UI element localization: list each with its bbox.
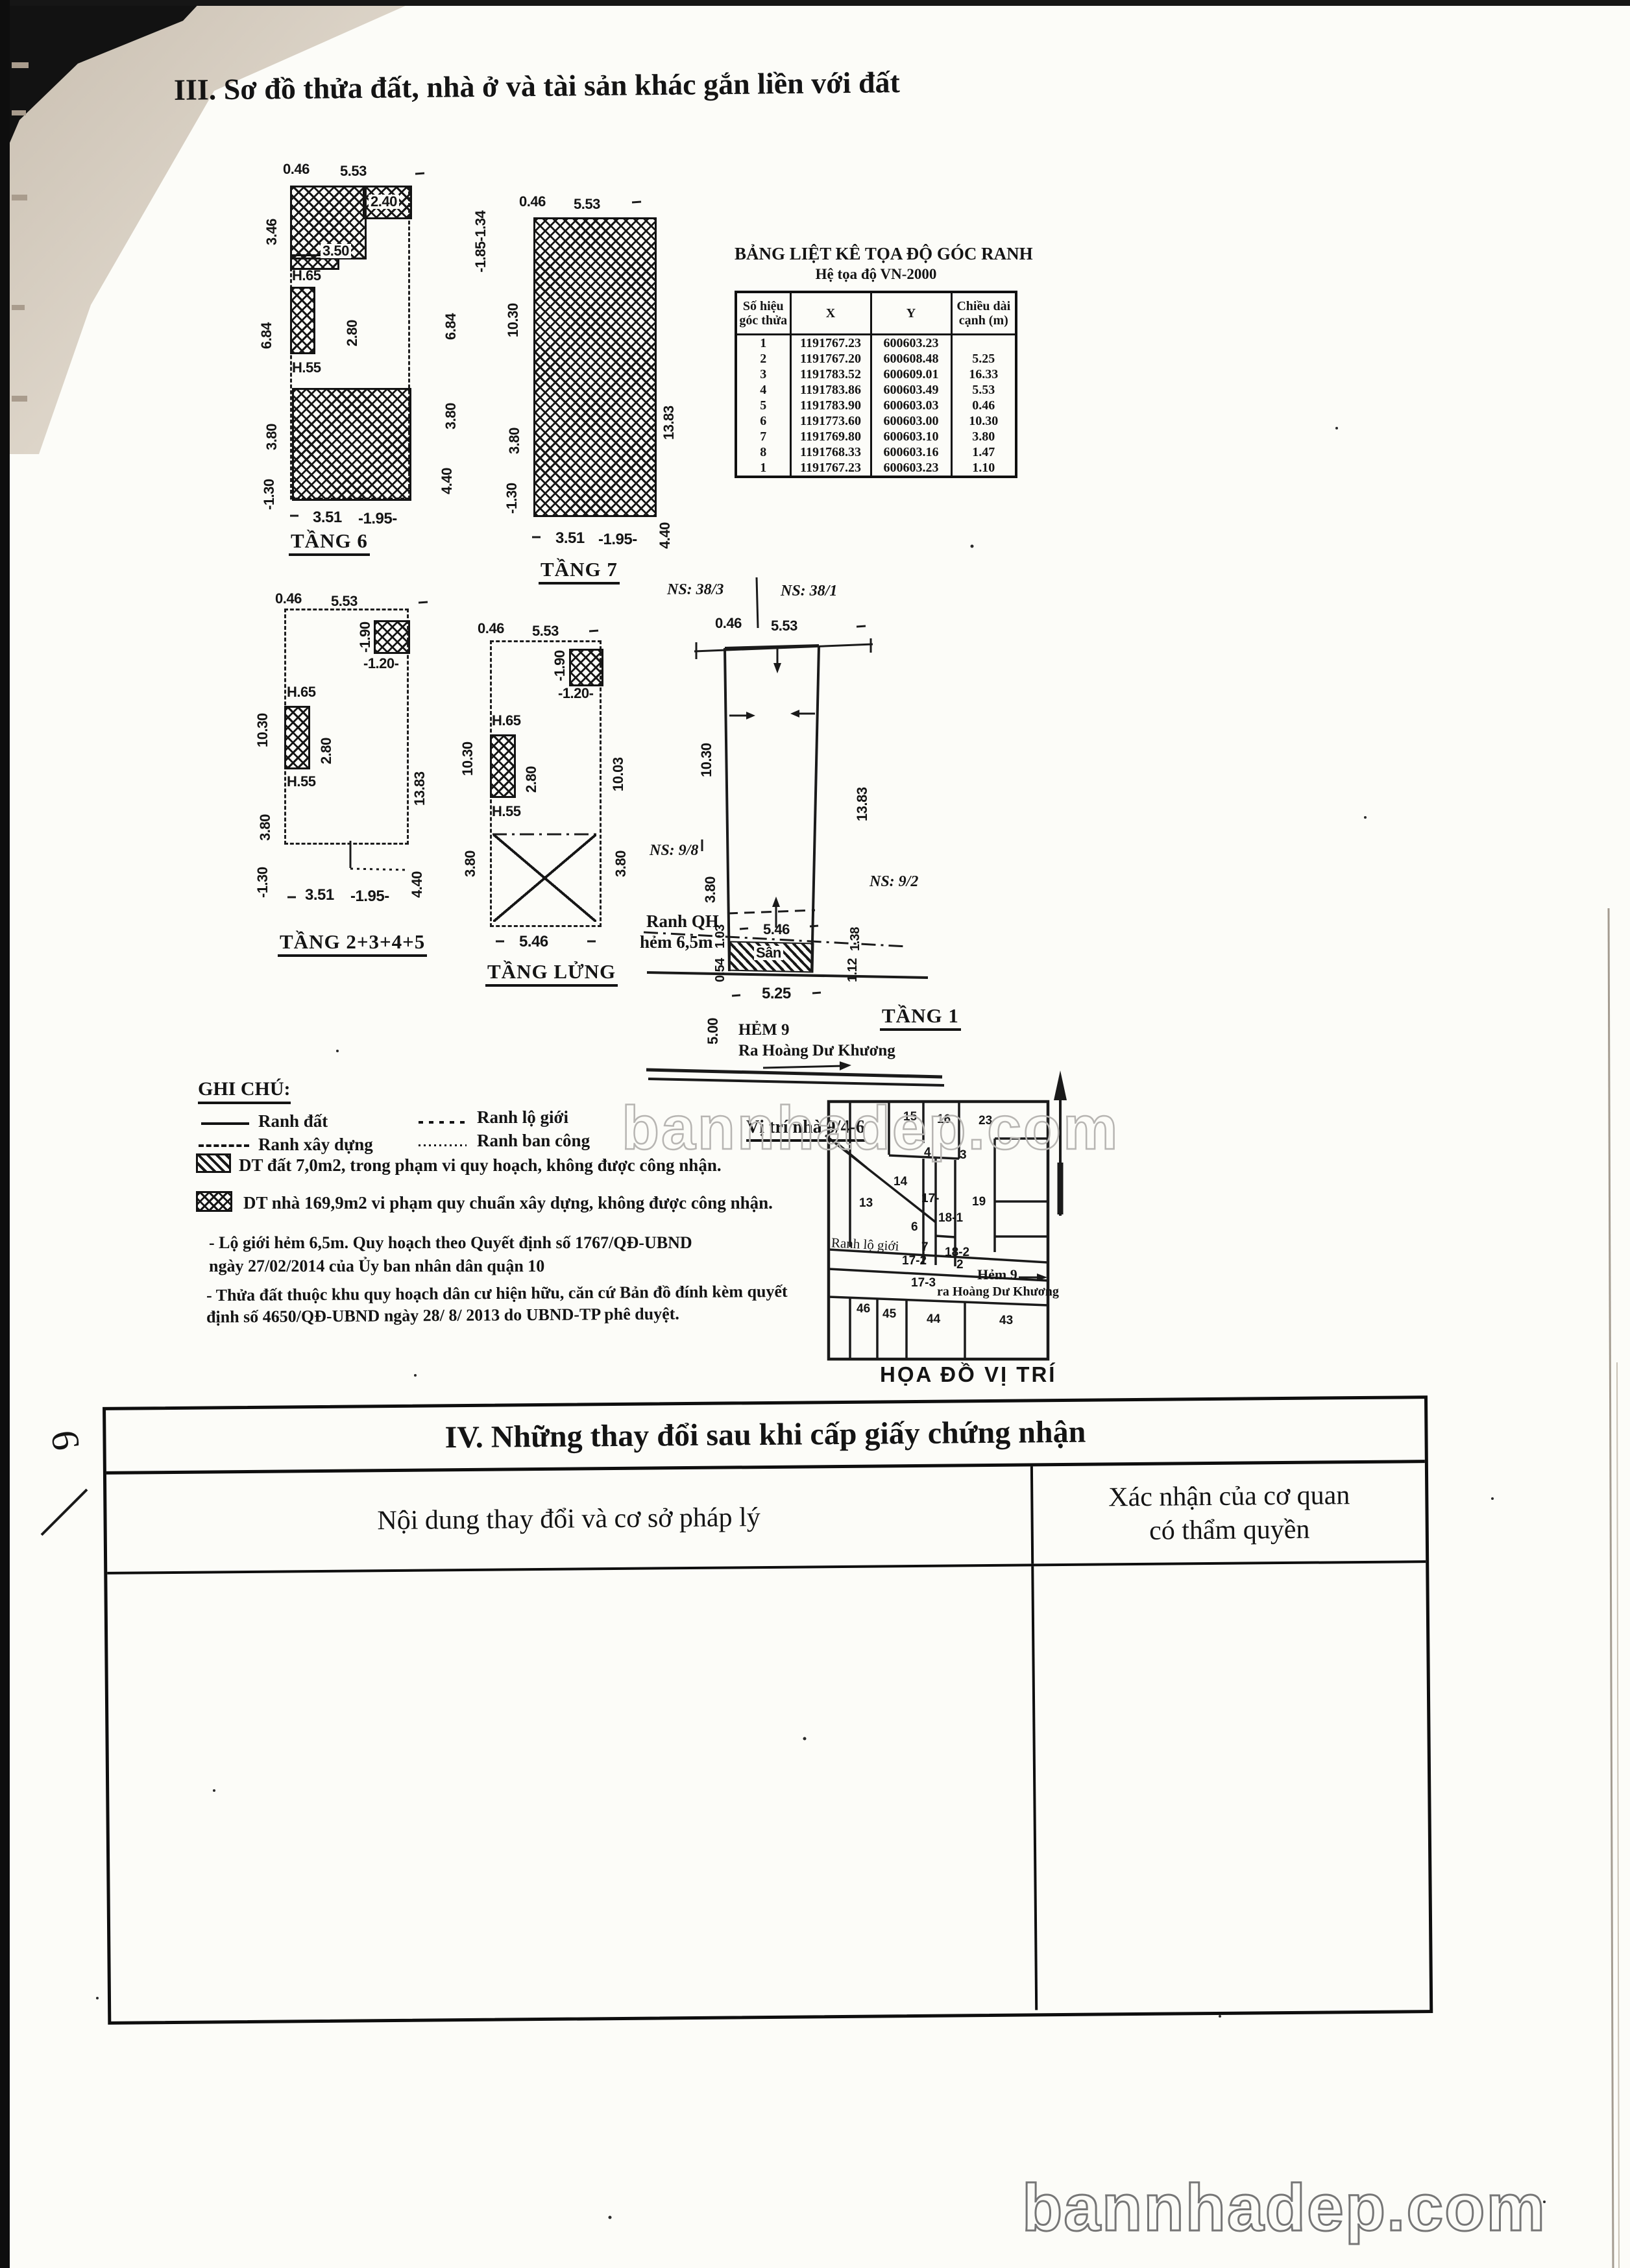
tanglung-dim: H.55 (492, 804, 520, 819)
tang2345-dim: H.65 (287, 685, 315, 699)
legend-swatch-diagonal (196, 1153, 231, 1173)
map-parcel: 4 (924, 1146, 931, 1159)
coord-cell: 16.33 (951, 367, 1016, 382)
map-parcel: 2 (956, 1259, 964, 1271)
coord-header-y: Y (871, 292, 951, 335)
tang6-dim: 6.84 (444, 313, 458, 340)
map-parcel: 15 (903, 1111, 917, 1123)
tang6-dim: 3.80 (265, 424, 279, 450)
map-title: HỌA ĐỒ VỊ TRÍ (880, 1364, 1056, 1385)
tang6-dim: H.65 (292, 269, 321, 283)
map-parcel: 13 (859, 1197, 873, 1209)
tang2345-dim: 3.51 (305, 887, 334, 903)
map-ra-hoang-label: ra Hoàng Dư Khương (937, 1285, 1059, 1299)
coord-cell: 1 (736, 460, 790, 477)
coord-table-row: 11191767.23600603.231.10 (736, 460, 1016, 477)
tang7-dim: 0.46 (519, 195, 546, 209)
tanglung-dim: 10.03 (611, 757, 626, 791)
watermark-middle: bannhadep.com (622, 1098, 1119, 1159)
coord-cell: 7 (736, 429, 790, 444)
tang6-dim: 3.50 (321, 244, 351, 258)
tang2345-dim: 13.83 (413, 771, 427, 806)
coord-table-row: 11191767.23600603.23 (736, 335, 1016, 352)
coord-cell: 600603.23 (871, 460, 951, 477)
tanglung-dim: 3.80 (463, 850, 478, 877)
coord-table-title: BẢNG LIỆT KÊ TỌA ĐỘ GÓC RANH (735, 244, 1017, 264)
tang6-dim: 4.40 (440, 468, 454, 494)
coord-cell: 10.30 (951, 413, 1016, 429)
tang7-dim: 4.40 (658, 522, 672, 549)
map-parcel: 7 (921, 1241, 929, 1253)
tang1-ns: NS: 38/3 (667, 581, 724, 599)
coord-table-body: 11191767.23600603.2321191767.20600608.48… (736, 335, 1016, 477)
tang6-dim: -1.30 (262, 479, 276, 510)
coord-cell: 5.53 (951, 382, 1016, 398)
coord-cell: 600603.16 (871, 444, 951, 460)
coord-header-corner: Số hiệugóc thửa (736, 292, 790, 335)
tang7-label: TẦNG 7 (539, 559, 620, 585)
coord-cell: 600609.01 (871, 367, 951, 382)
coord-cell: 1191773.60 (790, 413, 871, 429)
coord-cell: 0.46 (951, 398, 1016, 413)
tanglung-dim: 5.46 (519, 934, 548, 950)
tang2345-dim: 5.53 (331, 594, 358, 609)
coord-cell: 5.25 (951, 351, 1016, 367)
map-parcel: 16 (937, 1113, 951, 1126)
tang6-hatch-mid (290, 287, 315, 354)
tang2345-hatch-topright (374, 620, 410, 654)
coord-cell: 5 (736, 398, 790, 413)
tang1-dim: 13.83 (855, 787, 870, 821)
legend-note: - Lộ giới hẻm 6,5m. Quy hoạch theo Quyết… (209, 1233, 692, 1253)
map-parcel: 19 (972, 1196, 986, 1208)
scanned-certificate-page: III. Sơ đồ thửa đất, nhà ở và tài sản kh… (0, 0, 1630, 2268)
map-parcel: 17-2 (902, 1255, 927, 1267)
tang6-dim: 6.84 (260, 322, 274, 349)
handwritten-page-mark: 6 (45, 1428, 86, 1453)
tang1-dim: 1.12 (846, 958, 859, 982)
coord-table-row: 21191767.20600608.485.25 (736, 351, 1016, 367)
legend-heading: GHI CHÚ: (198, 1078, 291, 1104)
coord-table-row: 31191783.52600609.0116.33 (736, 367, 1016, 382)
legend-line-fine (419, 1144, 467, 1146)
coord-cell: 600603.49 (871, 382, 951, 398)
coord-cell: 1191768.33 (790, 444, 871, 460)
tang2345-dim: 3.80 (258, 814, 273, 841)
map-parcel: 43 (999, 1314, 1013, 1327)
legend-area2: DT nhà 169,9m2 vi phạm quy chuẩn xây dựn… (243, 1192, 773, 1213)
coord-table-subtitle: Hệ tọa độ VN-2000 (735, 266, 1017, 283)
tang2345-dim: -1.95- (350, 889, 389, 904)
tang1-dim: 5.46 (763, 923, 790, 937)
coord-cell: 4 (736, 382, 790, 398)
tang7-dim: -1.95- (598, 532, 637, 548)
tang6-label: TẦNG 6 (289, 531, 370, 556)
tang1-dim: 10.30 (699, 743, 714, 777)
tang1-dim: 0.46 (715, 616, 742, 631)
tang2345-dim: 4.40 (410, 871, 424, 898)
tanglung-dim: -1.20- (558, 686, 593, 701)
tang2345-dim: -1.90 (358, 621, 372, 653)
tang6-dim: -1.95- (358, 511, 397, 527)
tang1-dim: 0.54 (714, 958, 727, 982)
tang7-dim: -1.30 (505, 483, 519, 514)
legend-label: Ranh xây dựng (258, 1134, 373, 1155)
tanglung-dim: -1.90 (553, 650, 567, 681)
tanglung-hatch-topright (569, 649, 603, 686)
tang6-dim: 0.46 (283, 162, 310, 176)
legend-label: Ranh ban công (477, 1130, 590, 1151)
coord-cell: 1.10 (951, 460, 1016, 477)
map-parcel: 3 (960, 1149, 967, 1161)
tang6-dim: 2.80 (345, 320, 359, 346)
tang1-hem9: HẺM 9 (738, 1021, 789, 1039)
tang1-ns: NS: 9/8 (650, 842, 698, 860)
tang6-dim: 5.53 (340, 164, 367, 178)
tang7-dim: 3.80 (507, 428, 522, 454)
map-parcel: 6 (911, 1221, 918, 1233)
legend-note: định số 4650/QĐ-UBND ngày 28/ 8/ 2013 do… (206, 1303, 679, 1327)
map-parcel: 46 (857, 1303, 870, 1315)
legend-swatch-cross (196, 1191, 232, 1212)
tang7-hatch (533, 217, 657, 517)
section3-title: III. Sơ đồ thửa đất, nhà ở và tài sản kh… (174, 66, 900, 106)
tang1-dim: 5.00 (706, 1018, 720, 1044)
coord-header-x: X (790, 292, 871, 335)
section4-col2-cell (1034, 1563, 1429, 2010)
map-ranh-lo-gioi-label: Ranh lộ giới (831, 1235, 899, 1254)
section4-col1-header: Nội dung thay đổi và cơ sở pháp lý (106, 1466, 1034, 1571)
coord-cell: 3.80 (951, 429, 1016, 444)
tang7-dim: 5.53 (574, 197, 600, 211)
map-parcel: 17-3 (911, 1277, 936, 1289)
legend-area1: DT đất 7,0m2, trong phạm vi quy hoạch, k… (239, 1155, 722, 1176)
tang1-ranh-qh: Ranh QH (646, 911, 719, 932)
tang2345-dim: H.55 (287, 775, 315, 789)
tanglung-void-cross (493, 834, 596, 922)
coord-table-row: 81191768.33600603.161.47 (736, 444, 1016, 460)
tang1-ranh-qh: hẻm 6,5m (640, 932, 712, 952)
coord-table-row: 61191773.60600603.0010.30 (736, 413, 1016, 429)
coord-cell: 1191783.52 (790, 367, 871, 382)
tang6-dim: -1.85-1.34 (474, 211, 488, 272)
tang1-label: TẦNG 1 (880, 1006, 961, 1031)
coord-cell: 600603.03 (871, 398, 951, 413)
tanglung-label: TẦNG LỬNG (485, 961, 618, 987)
tang6-dim: 3.80 (444, 403, 458, 429)
tanglung-dim: 2.80 (524, 766, 539, 793)
tang6-dim: 3.51 (313, 510, 342, 525)
tanglung-hatch-left (490, 734, 516, 798)
coord-cell: 1191767.23 (790, 460, 871, 477)
section4-col1-cell (107, 1566, 1038, 2018)
tang1-ns: NS: 38/1 (781, 583, 837, 600)
legend-label: Ranh lộ giới (477, 1107, 568, 1128)
tang1-dim: 1.38 (849, 927, 862, 951)
coord-table-row: 41191783.86600603.495.53 (736, 382, 1016, 398)
coord-cell: 1 (736, 335, 790, 352)
map-parcel: 17- (921, 1192, 939, 1205)
tang6-dim: H.55 (292, 361, 321, 375)
tang2345-hatch-left (284, 706, 310, 769)
map-vi-tri-label: Vị trí nhà 9/4-6 (746, 1117, 865, 1142)
coord-cell: 600603.00 (871, 413, 951, 429)
tanglung-dim: 3.80 (614, 850, 628, 877)
coord-cell: 600603.10 (871, 429, 951, 444)
watermark-bottom: bannhadep.com (1022, 2175, 1546, 2241)
tanglung-dim: 10.30 (461, 742, 475, 776)
tang6-dim: 2.40 (369, 195, 399, 209)
tang1-dim: 1.03 (714, 924, 727, 948)
coord-header-row: Số hiệugóc thửa X Y Chiều dàicạnh (m) (736, 292, 1016, 335)
tanglung-dim: 5.53 (532, 624, 559, 638)
legend-label: Ranh đất (258, 1111, 328, 1131)
tang2345-dim: -1.30 (256, 867, 270, 898)
coord-table-row: 51191783.90600603.030.46 (736, 398, 1016, 413)
coord-cell: 1191767.23 (790, 335, 871, 352)
tang7-dim: 3.51 (555, 531, 585, 546)
tang2345-dim: 2.80 (319, 738, 334, 764)
coord-table-row: 71191769.80600603.103.80 (736, 429, 1016, 444)
coord-cell: 2 (736, 351, 790, 367)
tang1-dim: 5.25 (762, 986, 791, 1002)
tanglung-dim: H.65 (492, 714, 520, 728)
section4-title: IV. Những thay đổi sau khi cấp giấy chứn… (106, 1399, 1425, 1475)
coord-cell: 1.47 (951, 444, 1016, 460)
legend-line-solid (201, 1122, 249, 1125)
section4-header-row: Nội dung thay đổi và cơ sở pháp lý Xác n… (106, 1463, 1426, 1574)
coord-cell: 1191783.86 (790, 382, 871, 398)
tang1-ns: NS: 9/2 (870, 873, 918, 891)
tang6-hatch-bottom (292, 388, 411, 501)
coord-cell: 600608.48 (871, 351, 951, 367)
map-parcel: 44 (927, 1313, 940, 1325)
coord-cell: 600603.23 (871, 335, 951, 352)
map-parcel: 18-2 (945, 1246, 969, 1259)
coord-cell: 1191767.20 (790, 351, 871, 367)
coord-cell: 6 (736, 413, 790, 429)
map-parcel: 45 (882, 1308, 896, 1320)
tang1-san-label: Sân (754, 946, 783, 960)
coord-cell (951, 335, 1016, 352)
map-parcel: 14 (894, 1176, 907, 1188)
legend-note: - Thửa đất thuộc khu quy hoạch dân cư hi… (206, 1281, 788, 1305)
section4-col2-header: Xác nhận của cơ quancó thẩm quyền (1033, 1463, 1426, 1563)
tang1-dim: 5.53 (771, 619, 797, 633)
legend-line-dashed (199, 1144, 249, 1147)
coord-cell: 1191783.90 (790, 398, 871, 413)
map-parcel: 18-1 (938, 1212, 963, 1224)
coord-cell: 1191769.80 (790, 429, 871, 444)
tanglung-dim: 0.46 (478, 621, 504, 636)
tang2345-dim: 10.30 (256, 713, 270, 747)
tang2345-dim: -1.20- (363, 657, 398, 671)
tang7-dim: 13.83 (662, 405, 676, 440)
coord-cell: 8 (736, 444, 790, 460)
legend-line-dotted (419, 1121, 467, 1124)
tang7-dim: 10.30 (506, 303, 520, 337)
section4-body-row (107, 1563, 1429, 2018)
tang1-ra-hoang: Ra Hoàng Dư Khương (738, 1042, 895, 1060)
coord-table: Số hiệugóc thửa X Y Chiều dàicạnh (m) 11… (735, 291, 1017, 478)
map-parcel: 23 (979, 1115, 992, 1127)
section4-table: IV. Những thay đổi sau khi cấp giấy chứn… (103, 1395, 1433, 2025)
map-hem9-label: Hẻm 9 (977, 1266, 1017, 1283)
coord-header-length: Chiều dàicạnh (m) (951, 292, 1016, 335)
coord-cell: 3 (736, 367, 790, 382)
legend-note: ngày 27/02/2014 của Ủy ban nhân dân quận… (209, 1256, 544, 1276)
tang1-dim: 3.80 (703, 876, 718, 903)
tang6-dim: 3.46 (265, 219, 279, 245)
tang2345-dim: 0.46 (275, 592, 302, 606)
tang2345-label: TẦNG 2+3+4+5 (278, 932, 427, 957)
